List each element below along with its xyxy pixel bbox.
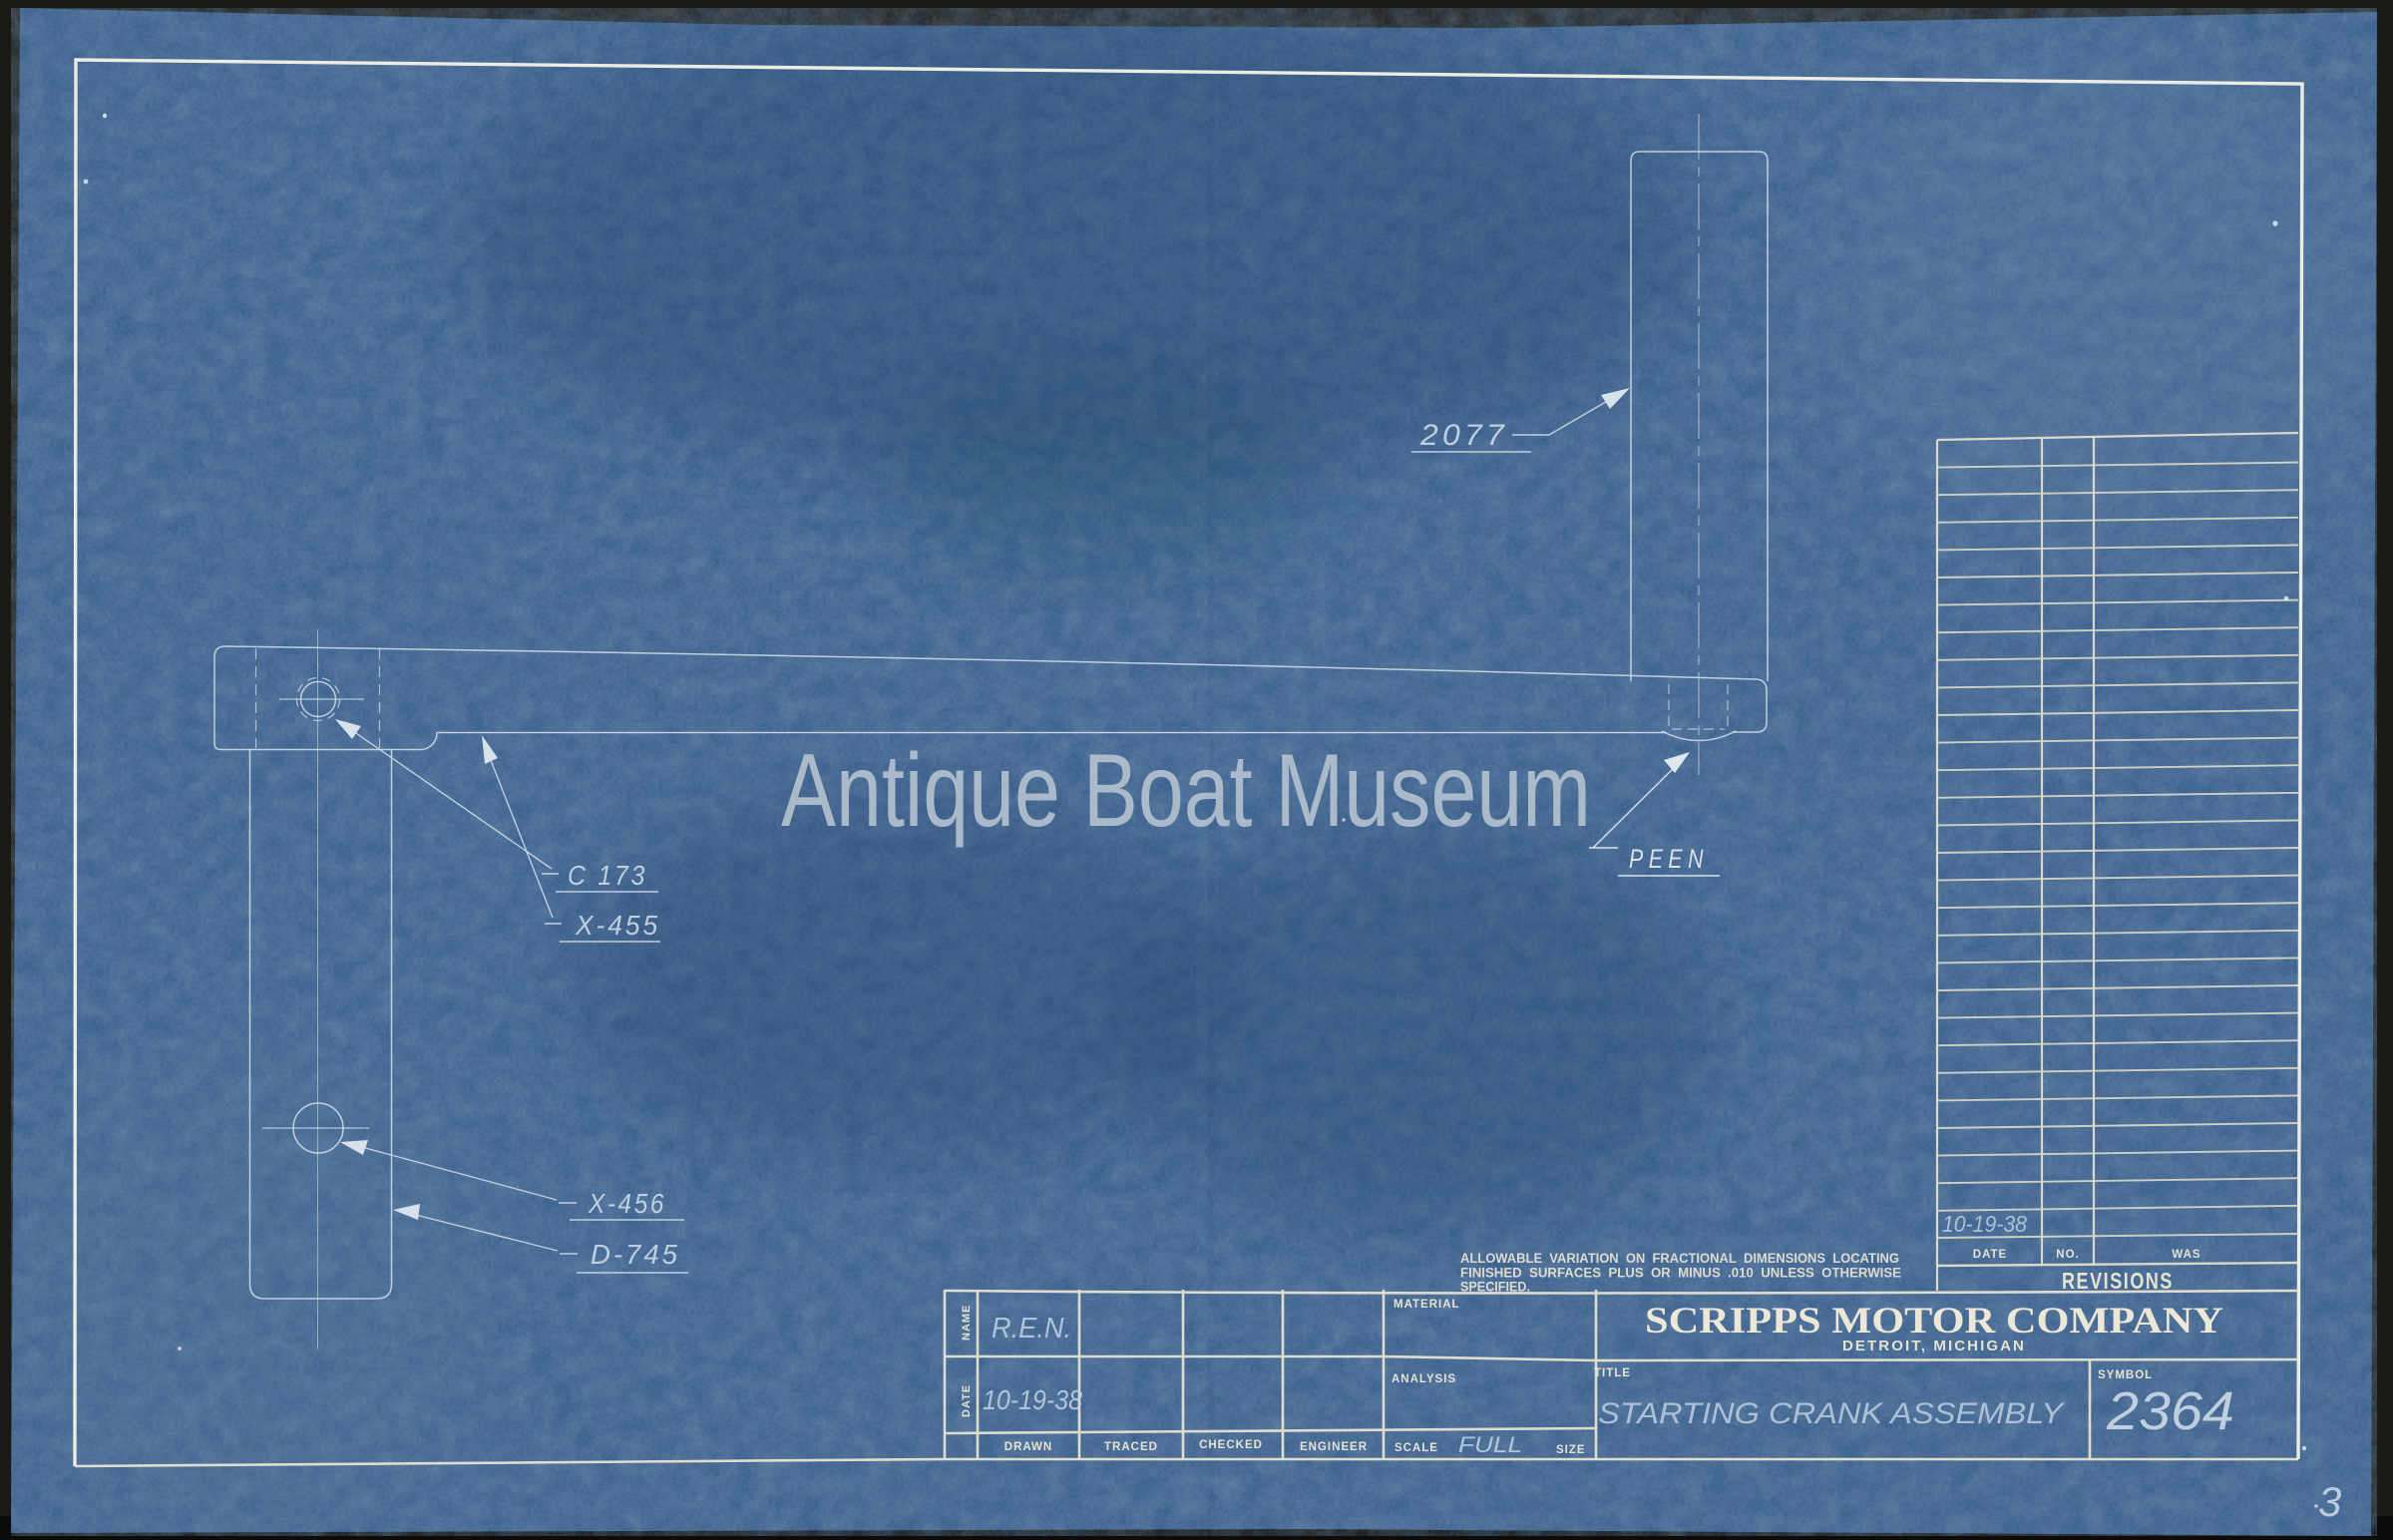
svg-text:TITLE: TITLE — [1594, 1367, 1631, 1379]
svg-text:FULL: FULL — [1458, 1432, 1522, 1457]
svg-text:SCALE: SCALE — [1395, 1442, 1438, 1454]
svg-text:MATERIAL: MATERIAL — [1394, 1299, 1460, 1311]
svg-text:2077: 2077 — [1419, 419, 1508, 452]
svg-text:ENGINEER: ENGINEER — [1300, 1441, 1368, 1453]
svg-text:STARTING CRANK ASSEMBLY: STARTING CRANK ASSEMBLY — [1598, 1397, 2065, 1430]
svg-text:X-456: X-456 — [588, 1188, 666, 1219]
svg-text:10-19-38: 10-19-38 — [983, 1384, 1082, 1415]
svg-text:NO.: NO. — [2056, 1249, 2079, 1261]
svg-text:NAME: NAME — [961, 1305, 973, 1341]
svg-text:2364: 2364 — [2106, 1381, 2234, 1441]
svg-text:R.E.N.: R.E.N. — [992, 1313, 1071, 1345]
svg-text:Antique Boat Museum: Antique Boat Museum — [781, 733, 1591, 849]
svg-text:ANALYSIS: ANALYSIS — [1392, 1373, 1456, 1385]
svg-text:DRAWN: DRAWN — [1004, 1441, 1052, 1453]
svg-text:SCRIPPS MOTOR COMPANY: SCRIPPS MOTOR COMPANY — [1645, 1301, 2223, 1342]
svg-text:DATE: DATE — [961, 1384, 973, 1417]
svg-text:FINISHED SURFACES PLUS OR: FINISHED SURFACES PLUS OR MINUS .010 UNL… — [1460, 1266, 1901, 1281]
svg-text:DATE: DATE — [1973, 1249, 2007, 1261]
svg-text:PEEN: PEEN — [1629, 844, 1709, 874]
svg-text:ALLOWABLE VARIATION ON FRAC: ALLOWABLE VARIATION ON FRACTIONAL DIMENS… — [1460, 1251, 1899, 1266]
svg-text:SYMBOL: SYMBOL — [2098, 1369, 2153, 1381]
svg-text:CHECKED: CHECKED — [1199, 1439, 1263, 1451]
svg-text:3: 3 — [2318, 1478, 2341, 1525]
svg-text:WAS: WAS — [2172, 1249, 2200, 1261]
svg-text:SIZE: SIZE — [1556, 1444, 1586, 1456]
svg-text:REVISIONS: REVISIONS — [2062, 1268, 2174, 1294]
svg-text:10-19-38: 10-19-38 — [1942, 1211, 2027, 1237]
svg-text:DETROIT, MICHIGAN: DETROIT, MICHIGAN — [1842, 1339, 2026, 1354]
svg-text:X-455: X-455 — [575, 910, 660, 941]
svg-text:D-745: D-745 — [591, 1239, 680, 1270]
svg-text:C 173: C 173 — [568, 860, 647, 891]
svg-text:TRACED: TRACED — [1104, 1441, 1158, 1453]
